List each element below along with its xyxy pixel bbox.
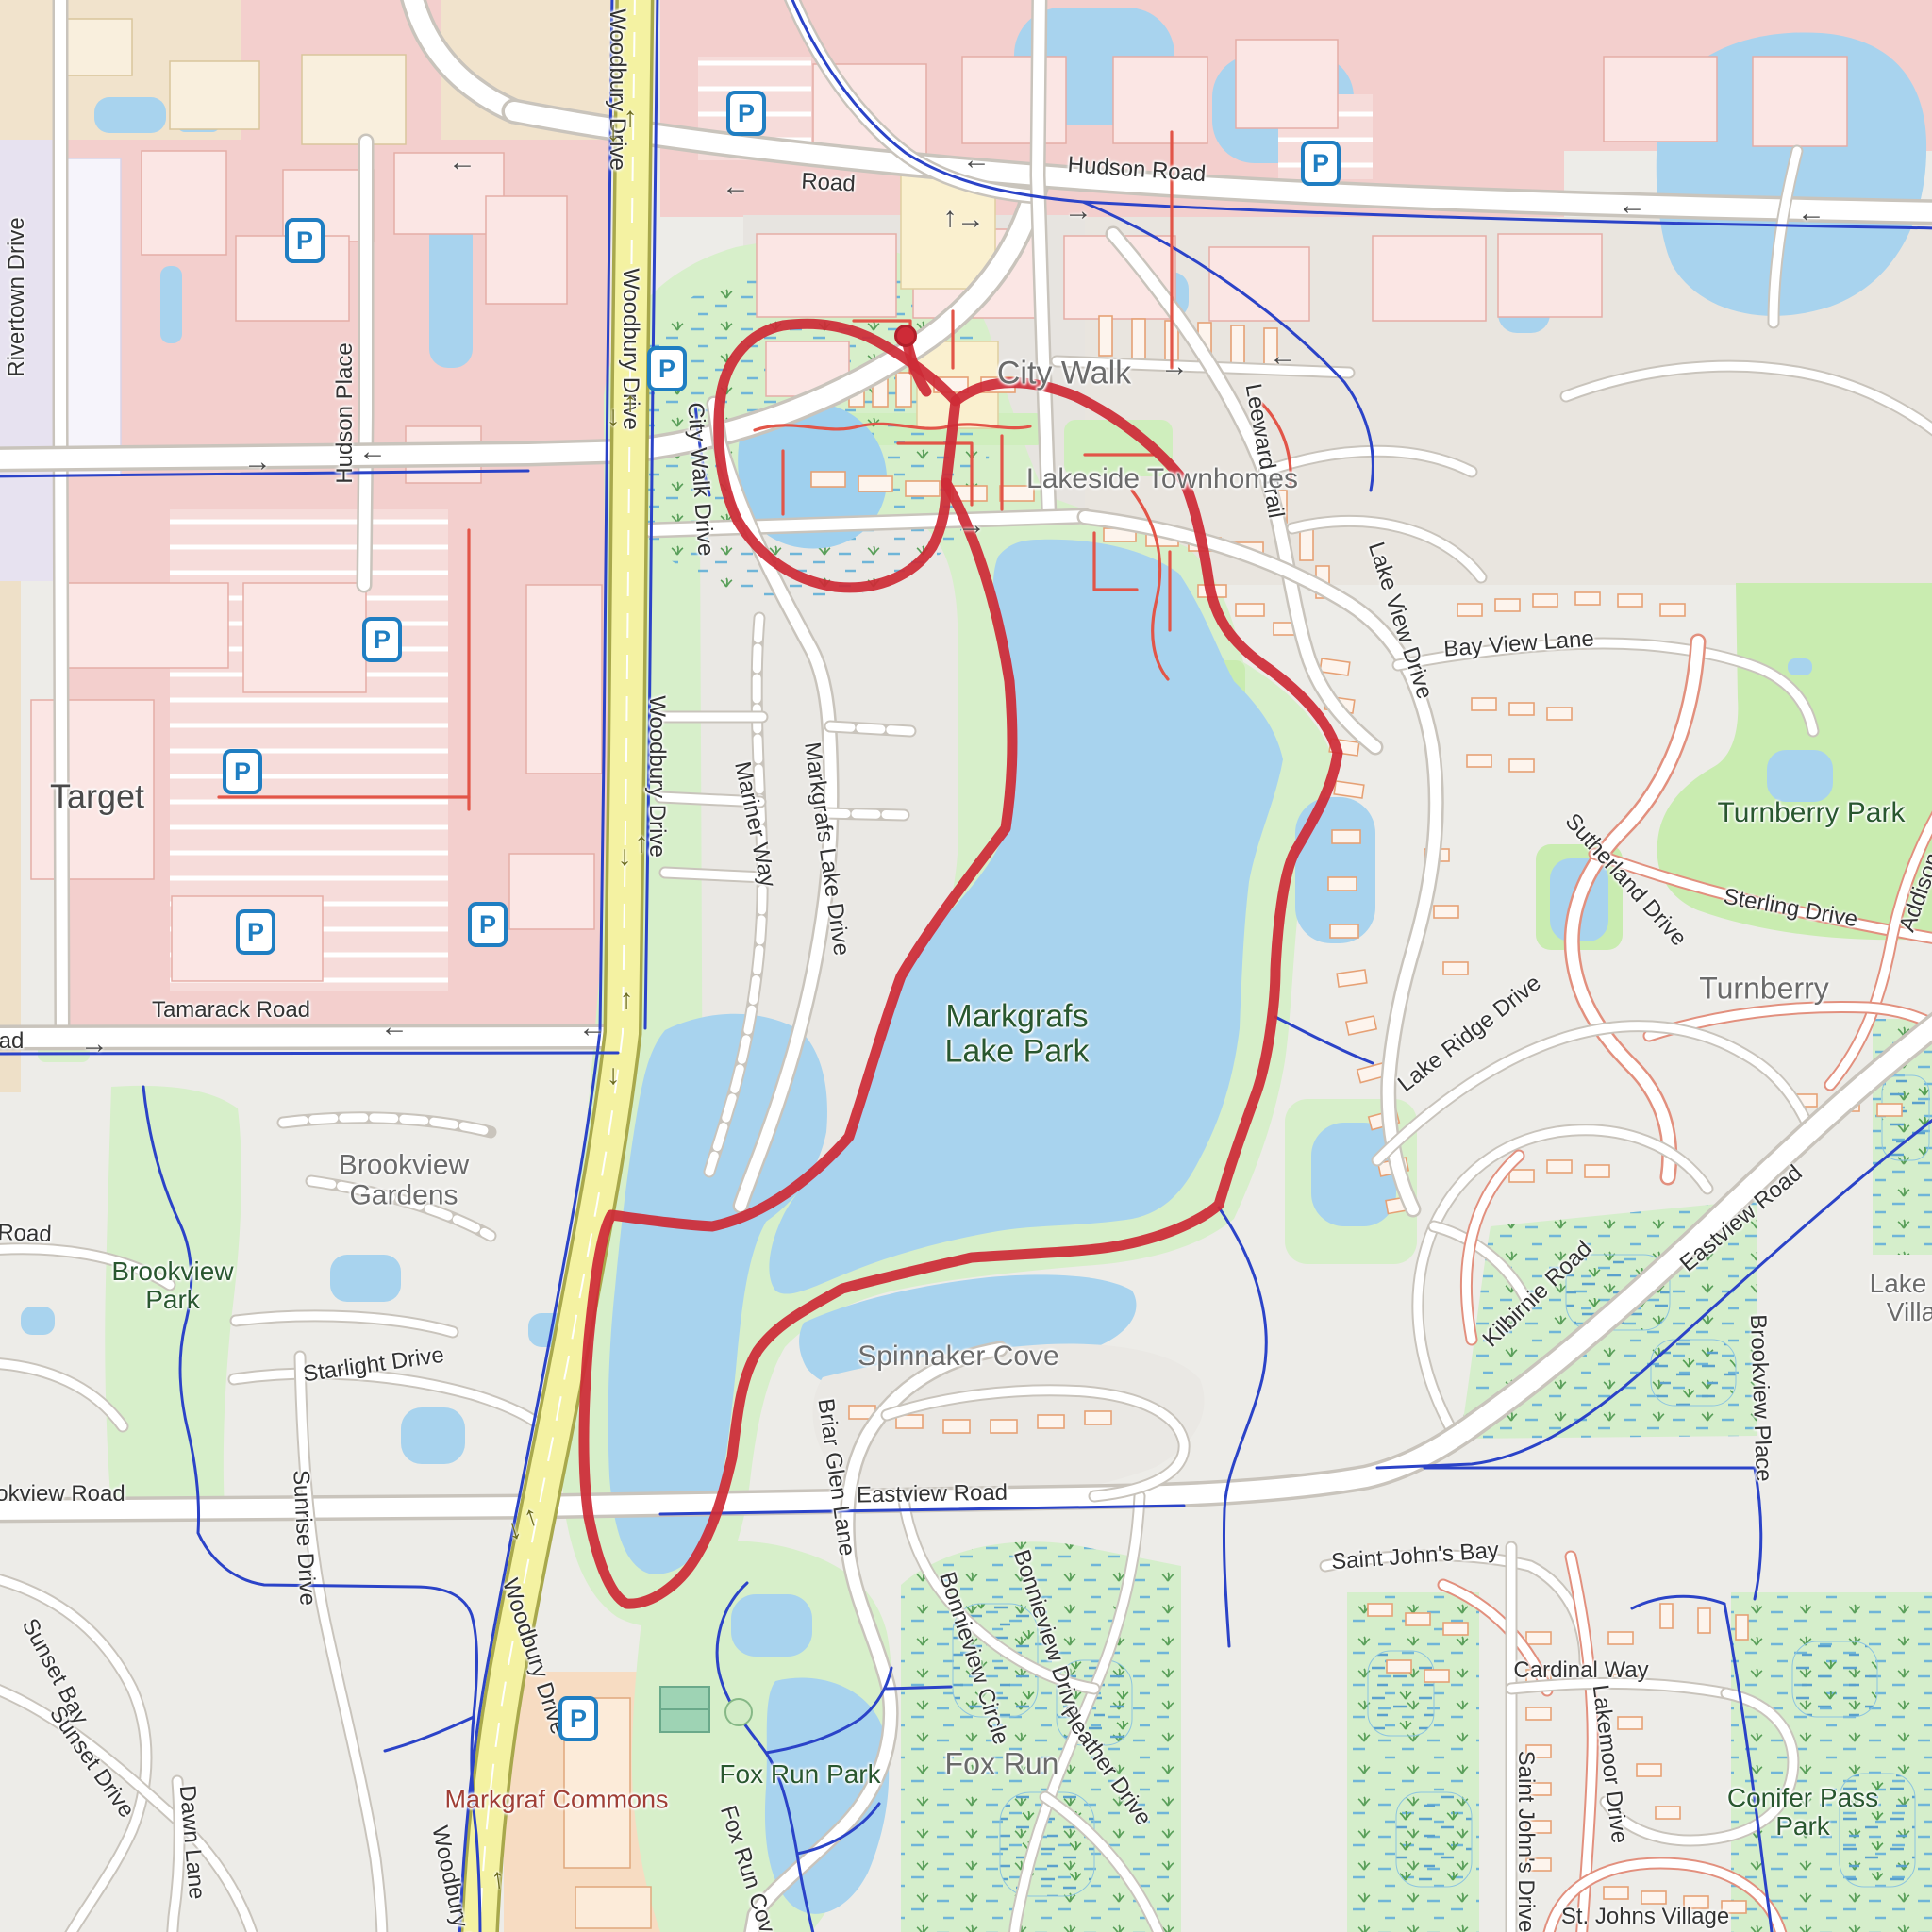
- label-tamarack-road: Tamarack Road: [152, 998, 310, 1023]
- parking-icon[interactable]: P: [468, 902, 508, 947]
- label-lake-ridge-villas: Lake RVilla: [1870, 1270, 1932, 1326]
- parking-icon[interactable]: P: [236, 909, 275, 955]
- building: [1526, 1632, 1551, 1644]
- oneway-arrow-icon: →: [1064, 195, 1092, 227]
- building: [526, 585, 602, 774]
- building: [1038, 1415, 1064, 1428]
- label-rivertown-drive: Rivertown Drive: [5, 217, 29, 376]
- oneway-arrow-icon: ←: [380, 1011, 408, 1043]
- oneway-arrow-icon: ↑: [624, 387, 638, 419]
- building: [1509, 703, 1534, 715]
- label-lakeside-townhomes: Lakeside Townhomes: [1026, 464, 1298, 494]
- parking-icon[interactable]: P: [223, 749, 262, 794]
- label-fox-run: Fox Run: [945, 1748, 1059, 1781]
- parking-icon[interactable]: P: [362, 617, 402, 662]
- building: [1618, 594, 1642, 607]
- building: [302, 55, 406, 144]
- building: [1637, 1764, 1661, 1776]
- building: [1368, 1604, 1392, 1616]
- oneway-arrow-icon: ↑: [624, 102, 638, 134]
- building: [170, 61, 259, 129]
- building: [1132, 319, 1145, 358]
- building: [1320, 658, 1350, 675]
- building: [1457, 604, 1482, 616]
- building: [906, 481, 940, 496]
- building: [1604, 1887, 1628, 1899]
- building: [943, 1420, 970, 1433]
- oneway-arrow-icon: →: [1160, 351, 1189, 383]
- label-fox-run-park: Fox Run Park: [719, 1760, 880, 1789]
- building: [1472, 698, 1496, 710]
- building: [1337, 970, 1367, 987]
- building: [1660, 1604, 1673, 1628]
- building: [1877, 1104, 1902, 1116]
- building: [1547, 708, 1572, 720]
- label-st-johns-village: St. Johns Village: [1561, 1905, 1729, 1929]
- building: [575, 1887, 651, 1928]
- label-cardinal-way: Cardinal Way: [1513, 1658, 1648, 1683]
- oneway-arrow-icon: ←: [578, 1012, 607, 1044]
- building: [1533, 594, 1557, 607]
- building: [858, 476, 892, 491]
- oneway-arrow-icon: →: [958, 509, 986, 541]
- building: [1443, 1623, 1468, 1635]
- building: [1656, 1807, 1680, 1819]
- label-target: Target: [50, 779, 144, 816]
- building: [1424, 1670, 1449, 1682]
- oneway-arrow-icon: ←: [1269, 341, 1297, 373]
- label-brookview-road: okview Road: [0, 1482, 125, 1507]
- building: [1608, 1632, 1633, 1644]
- map-canvas[interactable]: Rivertown DriveHudson PlaceWoodbury Driv…: [0, 0, 1932, 1932]
- building: [1300, 528, 1313, 560]
- building: [243, 583, 366, 692]
- oneway-arrow-icon: →: [243, 446, 272, 478]
- oneway-arrow-icon: ↓: [607, 401, 621, 433]
- building: [1231, 325, 1244, 365]
- building: [1736, 1615, 1748, 1640]
- label-left-edge-road: Road: [0, 1221, 52, 1247]
- building: [1330, 924, 1358, 938]
- oneway-arrow-icon: ←: [1618, 190, 1646, 222]
- oneway-arrow-icon: ←: [722, 171, 750, 203]
- building: [1334, 781, 1364, 798]
- building: [1509, 759, 1534, 772]
- label-city-walk: City Walk: [997, 357, 1131, 391]
- oneway-arrow-icon: ←: [1797, 197, 1825, 229]
- building: [1406, 1613, 1430, 1625]
- oneway-arrow-icon: ↓: [607, 116, 621, 148]
- oneway-arrow-icon: ↑: [620, 984, 634, 1016]
- parking-icon[interactable]: P: [1301, 141, 1341, 186]
- building: [1236, 40, 1338, 128]
- building: [962, 57, 1066, 143]
- building: [1575, 592, 1600, 605]
- building: [1660, 604, 1685, 616]
- label-spinnaker-cove: Spinnaker Cove: [858, 1341, 1058, 1372]
- parking-icon[interactable]: P: [558, 1696, 598, 1741]
- parking-icon[interactable]: P: [285, 218, 325, 263]
- building: [1547, 1160, 1572, 1173]
- parking-icon[interactable]: P: [726, 91, 766, 136]
- label-markgraf-commons: Markgraf Commons: [444, 1786, 668, 1813]
- oneway-arrow-icon: ↓: [607, 1059, 621, 1091]
- building: [896, 373, 911, 407]
- building: [142, 151, 226, 255]
- label-turnberry: Turnberry: [1699, 973, 1829, 1006]
- building: [1641, 1891, 1666, 1904]
- oneway-arrow-icon: ←: [448, 146, 476, 178]
- building: [1526, 1707, 1551, 1720]
- building: [1085, 1411, 1111, 1424]
- label-left-edge-fragment-ad: ad: [0, 1029, 24, 1054]
- oneway-arrow-icon: ←: [962, 144, 991, 176]
- building: [1328, 877, 1357, 891]
- label-markgrafs-lake-park: MarkgrafsLake Park: [944, 999, 1089, 1068]
- building: [757, 234, 896, 317]
- building: [509, 854, 594, 929]
- building: [1753, 57, 1847, 146]
- building: [1698, 1608, 1710, 1633]
- oneway-arrow-icon: →: [957, 204, 985, 236]
- building: [1373, 236, 1486, 321]
- building: [1467, 755, 1491, 767]
- oneway-arrow-icon: →: [80, 1028, 108, 1060]
- label-brookview-gardens: BrookviewGardens: [339, 1151, 469, 1212]
- building: [1236, 604, 1264, 616]
- building: [991, 1420, 1017, 1433]
- building: [1509, 1170, 1534, 1182]
- oneway-arrow-icon: ↑: [635, 827, 649, 859]
- building: [1604, 57, 1717, 142]
- oneway-arrow-icon: ↓: [618, 841, 632, 873]
- label-hudson-place: Hudson Place: [333, 342, 358, 483]
- building: [811, 472, 845, 487]
- building: [1498, 234, 1602, 317]
- route-start-marker[interactable]: [894, 325, 917, 347]
- building: [1443, 962, 1468, 974]
- oneway-arrow-icon: ←: [358, 436, 387, 468]
- building: [1099, 316, 1112, 356]
- building: [1434, 906, 1458, 918]
- label-road-fragment-top: Road: [801, 170, 857, 197]
- building: [1387, 1660, 1411, 1673]
- building: [1332, 830, 1360, 843]
- label-turnberry-park: Turnberry Park: [1718, 798, 1906, 828]
- building: [1585, 1165, 1609, 1177]
- building: [1209, 247, 1309, 321]
- label-conifer-pass-park: Conifer PassPark: [1727, 1784, 1878, 1840]
- building: [486, 196, 567, 304]
- label-brookview-park: BrookviewPark: [111, 1257, 233, 1314]
- building: [1618, 1717, 1642, 1729]
- label-eastview-road-south: Eastview Road: [857, 1481, 1008, 1508]
- label-brookview-place: Brookview Place: [1745, 1314, 1775, 1482]
- label-saint-johns-drive: Saint John's Drive: [1513, 1751, 1538, 1932]
- parking-icon[interactable]: P: [647, 346, 687, 391]
- oneway-arrow-icon: ↑: [943, 202, 958, 234]
- building: [1113, 57, 1207, 143]
- building: [58, 583, 228, 668]
- building: [1495, 599, 1520, 611]
